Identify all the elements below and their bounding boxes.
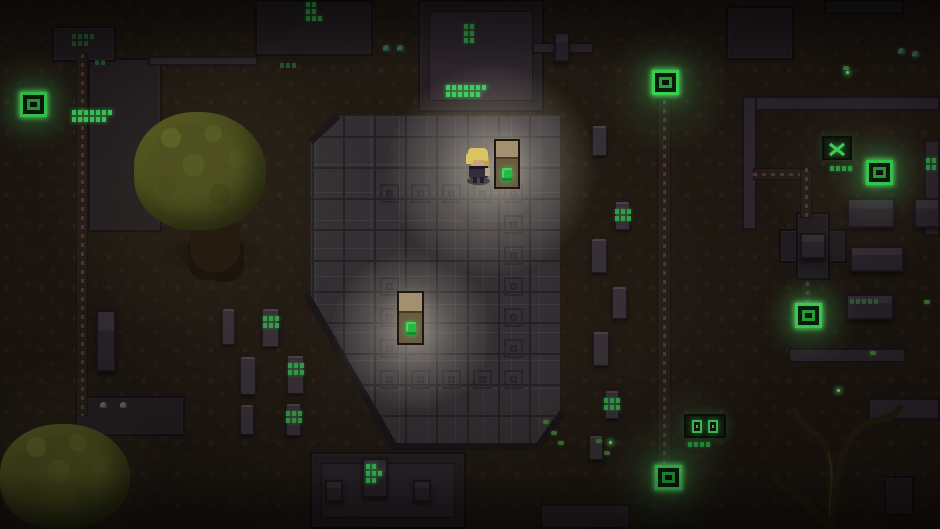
rune-cell — [694, 442, 698, 447]
rune-cell — [932, 158, 936, 163]
glow-pad-mid-east[interactable] — [795, 303, 822, 328]
rune-cell — [84, 117, 88, 122]
moss-tuft — [543, 420, 549, 424]
rune-cell — [312, 2, 316, 7]
rune-cell — [96, 117, 100, 122]
rune-inscription — [280, 63, 296, 68]
rune-row — [306, 2, 322, 7]
box-glyph — [692, 420, 702, 433]
rune-cell — [621, 209, 625, 214]
platform-top-right-b — [824, 0, 904, 14]
path-stitching — [663, 100, 666, 466]
stone-slab — [846, 294, 894, 320]
rune-cell — [868, 299, 872, 304]
rune-row — [464, 38, 474, 43]
rune-cell — [294, 363, 298, 368]
rune-cell — [615, 209, 619, 214]
rune-cell — [90, 117, 94, 122]
rune-row — [286, 411, 302, 416]
rune-cell — [378, 471, 382, 476]
rune-cell — [476, 85, 480, 90]
skull-decoration — [100, 402, 107, 408]
rune-cell — [292, 411, 296, 416]
rune-cell — [78, 41, 82, 46]
rune-inscription — [446, 85, 486, 97]
rune-cell — [926, 165, 930, 170]
rune-cell — [464, 31, 468, 36]
rune-cell — [452, 92, 456, 97]
rune-tile — [501, 274, 526, 299]
rune-cell — [288, 363, 292, 368]
stone-wall — [742, 96, 940, 111]
green-sparkle — [837, 389, 840, 392]
floor-edge — [396, 443, 538, 450]
tree-bottom-left — [0, 424, 130, 529]
rune-tile — [501, 212, 526, 237]
rune-cell — [275, 316, 279, 321]
rune-cell — [101, 60, 105, 65]
rune-cell — [464, 85, 468, 90]
rune-row — [926, 158, 936, 163]
rune-row — [263, 316, 279, 321]
rune-cell — [72, 110, 76, 115]
rune-cell — [372, 464, 376, 469]
rune-cell — [610, 405, 614, 410]
stone-wall — [742, 96, 757, 230]
rune-row — [688, 442, 710, 447]
rune-cell — [366, 471, 370, 476]
character-shadow — [467, 177, 490, 185]
rune-cell — [84, 110, 88, 115]
rune-tile — [439, 181, 464, 206]
rune-cell — [292, 63, 296, 68]
rune-cell — [700, 442, 704, 447]
rune-cell — [102, 110, 106, 115]
skull-decoration — [912, 51, 919, 57]
rune-row — [306, 9, 322, 14]
rune-cell — [615, 216, 619, 221]
gravestone — [593, 332, 609, 366]
gravestone-runes — [265, 316, 276, 328]
path-left-vertical — [76, 54, 88, 416]
rune-inscription — [95, 60, 105, 65]
x-marker-sign[interactable] — [822, 136, 852, 160]
rune-cell — [298, 418, 302, 423]
rune-cell — [108, 110, 112, 115]
moss-tuft — [596, 439, 602, 443]
rune-inscription — [464, 24, 474, 43]
rune-cell — [306, 16, 310, 21]
rune-cell — [616, 398, 620, 403]
rune-cell — [312, 16, 316, 21]
stone-wall — [148, 56, 258, 66]
rune-cell — [306, 9, 310, 14]
rune-cell — [627, 216, 631, 221]
rune-cell — [470, 31, 474, 36]
character-arm — [485, 168, 490, 176]
gravestone-glowing[interactable] — [262, 309, 279, 347]
stone-slab — [325, 480, 343, 502]
tree-top-left — [134, 112, 266, 230]
rune-cell — [616, 405, 620, 410]
rune-tile — [377, 367, 402, 392]
rune-cell — [830, 166, 834, 171]
rune-cell — [269, 316, 273, 321]
rune-cell — [312, 9, 316, 14]
gravestone-glowing[interactable] — [615, 202, 630, 230]
rune-cell — [476, 92, 480, 97]
stone-slab — [914, 198, 940, 228]
sarcophagus-lid — [496, 141, 518, 159]
rune-row — [288, 363, 304, 368]
character-legs — [473, 177, 477, 183]
gravestone-glowing[interactable] — [286, 404, 301, 436]
rune-row — [366, 471, 382, 476]
gravestone-glowing[interactable] — [287, 356, 304, 394]
rune-row — [280, 63, 296, 68]
green-sparkle — [609, 441, 612, 444]
rune-cell — [318, 16, 322, 21]
gravestone — [592, 126, 607, 156]
rune-cell — [932, 165, 936, 170]
rune-cell — [604, 405, 608, 410]
rune-cell — [482, 85, 486, 90]
rune-cell — [452, 85, 456, 90]
path-main-vertical — [657, 100, 671, 466]
rune-cell — [292, 418, 296, 423]
rune-inscription — [306, 2, 322, 21]
rune-cell — [470, 24, 474, 29]
rune-cell — [856, 299, 860, 304]
rune-tile — [470, 367, 495, 392]
rune-cell — [275, 323, 279, 328]
dead-tree — [770, 398, 940, 529]
rune-row — [604, 405, 620, 410]
rune-cell — [102, 117, 106, 122]
rune-row — [366, 478, 382, 483]
moss-tuft — [558, 441, 564, 445]
moss-tuft — [604, 451, 610, 455]
rune-cell — [263, 316, 267, 321]
rune-cell — [280, 63, 284, 68]
rune-cell — [286, 411, 290, 416]
stone-wall — [540, 504, 630, 529]
rune-row — [830, 166, 852, 171]
gravestone — [612, 287, 627, 319]
rune-cell — [372, 478, 376, 483]
rune-inscription — [830, 166, 852, 171]
rune-cell — [446, 85, 450, 90]
rune-cell — [269, 323, 273, 328]
rune-cell — [848, 166, 852, 171]
gravestone-glowing[interactable] — [605, 391, 619, 419]
rune-cell — [294, 370, 298, 375]
rune-cell — [300, 370, 304, 375]
gravestone — [222, 309, 235, 345]
rune-cell — [688, 442, 692, 447]
rune-inscription — [688, 442, 710, 447]
rune-cell — [300, 363, 304, 368]
glow-pad-east[interactable] — [866, 160, 893, 185]
rune-cell — [78, 117, 82, 122]
stone-slab — [413, 480, 431, 502]
rune-cell — [464, 24, 468, 29]
rune-cell — [464, 92, 468, 97]
rune-row — [306, 16, 322, 21]
rune-cell — [610, 398, 614, 403]
gravestone-runes — [618, 209, 627, 221]
rune-cell — [84, 34, 88, 39]
rune-row — [72, 110, 112, 115]
sarcophagus-lid — [399, 293, 422, 313]
rune-cell — [862, 299, 866, 304]
rune-row — [604, 398, 620, 403]
rune-inscription — [926, 158, 936, 170]
rune-cell — [366, 464, 370, 469]
rune-tile — [377, 181, 402, 206]
rune-tile — [501, 336, 526, 361]
rune-cell — [850, 299, 854, 304]
rune-row — [95, 60, 105, 65]
dead-tree-branches — [770, 398, 940, 529]
cross-center — [800, 233, 826, 259]
rune-cell — [621, 216, 625, 221]
rune-tile — [501, 305, 526, 330]
gravestone-runes — [608, 398, 616, 410]
gravestone — [240, 405, 254, 435]
rune-cell — [366, 478, 370, 483]
sarcophagus-north[interactable] — [494, 139, 520, 189]
stone-slab — [847, 198, 895, 228]
rune-tile — [439, 367, 464, 392]
rune-cell — [458, 92, 462, 97]
skull-decoration — [397, 45, 404, 51]
rune-cell — [286, 418, 290, 423]
rune-cell — [464, 38, 468, 43]
rune-cell — [78, 110, 82, 115]
player-character[interactable] — [464, 148, 492, 186]
rune-cell — [836, 166, 840, 171]
rune-row — [615, 209, 631, 214]
box-glyph — [708, 420, 718, 433]
rune-cell — [470, 92, 474, 97]
rune-row — [263, 323, 279, 328]
skull-decoration — [383, 45, 390, 51]
glyph-sign[interactable] — [684, 414, 726, 438]
rune-row — [926, 165, 936, 170]
glowing-seal-icon — [502, 168, 512, 181]
rune-cell — [470, 85, 474, 90]
rune-row — [615, 216, 631, 221]
rune-cell — [90, 34, 94, 39]
rune-cell — [90, 110, 94, 115]
gravestone — [240, 357, 256, 395]
rune-inscription — [72, 34, 94, 46]
skull-decoration — [120, 402, 127, 408]
rune-row — [366, 464, 382, 469]
moss-tuft — [924, 300, 930, 304]
rune-cell — [72, 41, 76, 46]
stone-wall — [788, 348, 906, 363]
gravestone-runes — [289, 411, 298, 423]
path-right-vertical — [800, 168, 812, 218]
rune-cell — [627, 209, 631, 214]
platform-top-right-a — [726, 6, 794, 60]
moss-tuft — [551, 431, 557, 435]
rune-tile — [408, 367, 433, 392]
rune-row — [850, 299, 878, 304]
rune-row — [72, 34, 94, 39]
rune-row — [72, 117, 112, 122]
rune-cell — [72, 34, 76, 39]
rune-cell — [84, 41, 88, 46]
stone-slab — [96, 310, 116, 372]
rune-cell — [96, 110, 100, 115]
rune-cell — [306, 2, 310, 7]
rune-cell — [470, 38, 474, 43]
green-sparkle — [846, 71, 849, 74]
moss-tuft — [843, 66, 849, 70]
rune-cell — [604, 398, 608, 403]
rune-cell — [286, 63, 290, 68]
moss-tuft — [870, 351, 876, 355]
gravestone — [591, 239, 607, 273]
glow-pad-northwest[interactable] — [20, 92, 47, 117]
rune-tile — [501, 367, 526, 392]
rune-row — [288, 370, 304, 375]
sarcophagus-south[interactable] — [397, 291, 424, 345]
skull-decoration — [898, 48, 905, 54]
rune-cell — [926, 158, 930, 163]
rune-inscription — [366, 464, 382, 483]
rune-cell — [72, 117, 76, 122]
rune-cell — [78, 34, 82, 39]
rune-row — [286, 418, 302, 423]
gravestone-runes — [290, 363, 301, 375]
glowing-seal-icon — [406, 322, 416, 335]
rune-tile — [501, 243, 526, 268]
rune-cell — [706, 442, 710, 447]
rune-cell — [446, 92, 450, 97]
rune-row — [72, 41, 94, 46]
rune-row — [464, 24, 474, 29]
glow-pad-north[interactable] — [652, 70, 679, 95]
glow-pad-south[interactable] — [655, 465, 682, 490]
stone-slab — [850, 246, 904, 272]
rune-cell — [842, 166, 846, 171]
rune-cell — [298, 411, 302, 416]
rune-row — [464, 31, 474, 36]
rune-cell — [263, 323, 267, 328]
rune-cell — [95, 60, 99, 65]
rune-inscription — [850, 299, 878, 304]
rune-cell — [372, 471, 376, 476]
rune-cell — [874, 299, 878, 304]
rune-row — [446, 85, 486, 90]
rune-tile — [408, 181, 433, 206]
path-stitching — [81, 54, 84, 416]
rune-row — [446, 92, 486, 97]
rune-cell — [458, 85, 462, 90]
rune-inscription — [72, 110, 112, 122]
rune-cell — [288, 370, 292, 375]
path-stitching — [805, 168, 808, 218]
game-scene-graveyard-dungeon — [0, 0, 940, 529]
stone-slab — [554, 32, 570, 62]
